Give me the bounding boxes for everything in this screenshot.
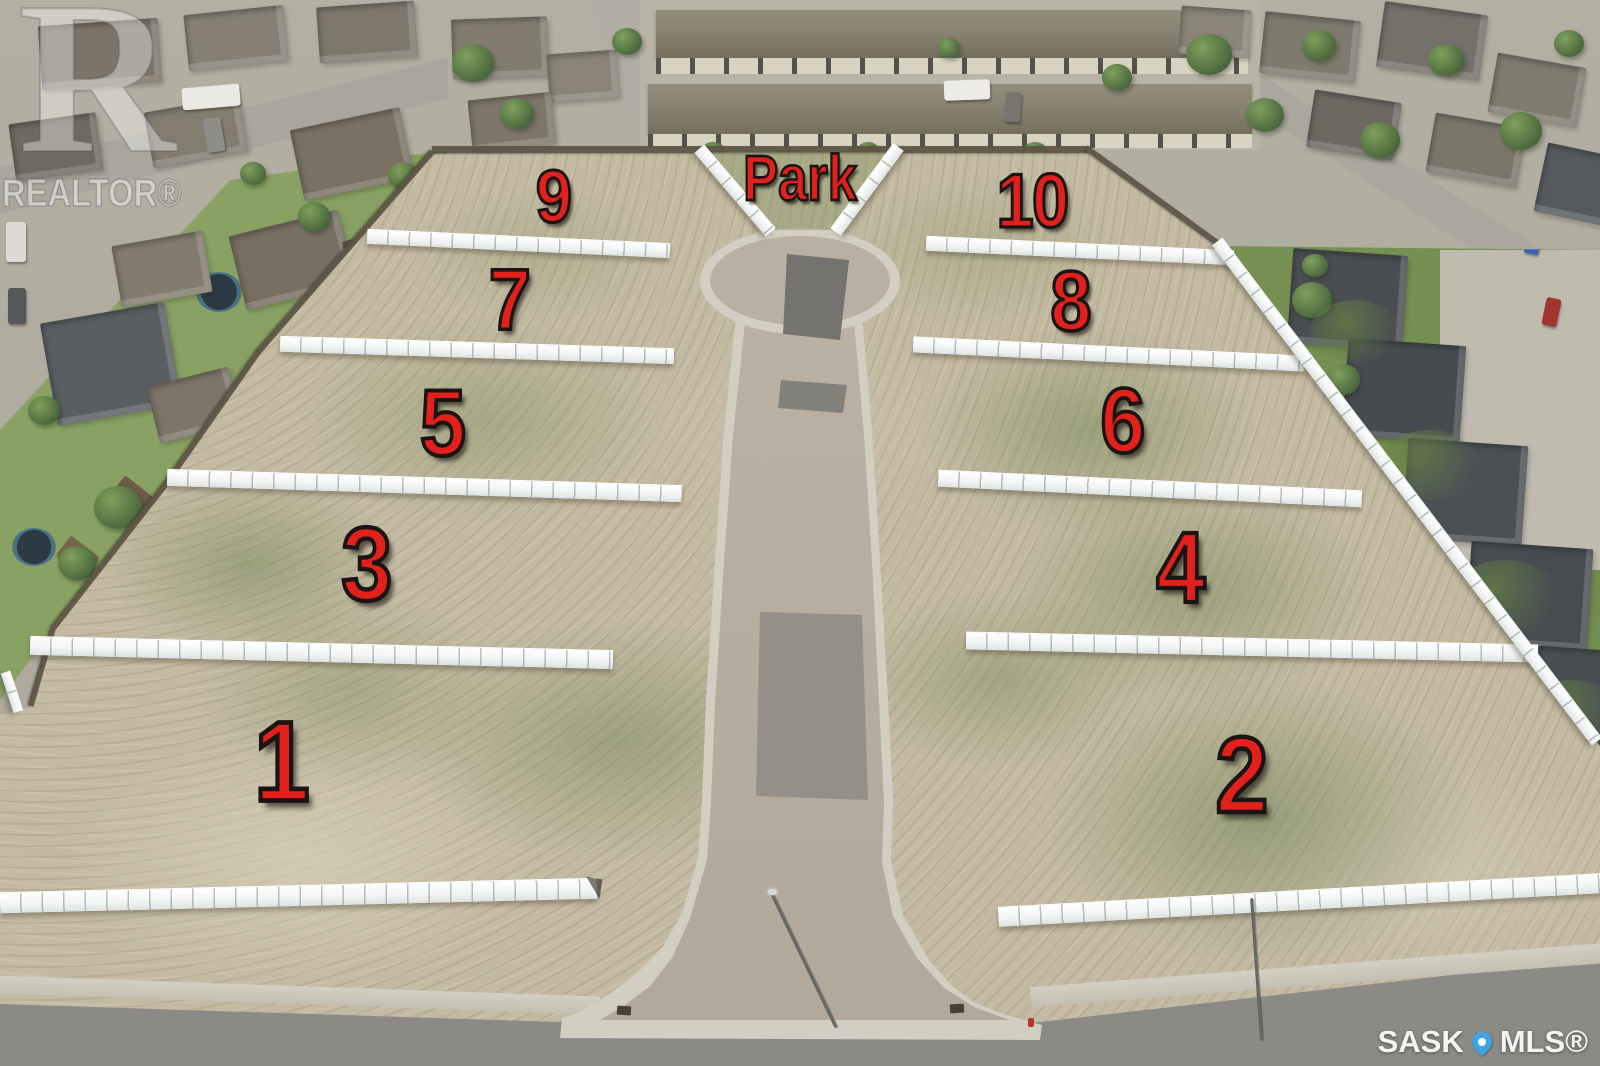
tree [500, 98, 534, 129]
lot-label-4: 4 [1156, 518, 1203, 618]
lot-label-1: 1 [254, 706, 308, 819]
lot-label-8: 8 [1050, 259, 1089, 343]
lot-label-7: 7 [489, 257, 529, 343]
vehicle [944, 79, 991, 101]
lot-label-2: 2 [1215, 721, 1266, 829]
tree [612, 28, 642, 55]
tree [938, 38, 960, 58]
lawn-patch [1310, 300, 1400, 363]
sask-text: SASK [1378, 1024, 1464, 1060]
lot-label-6: 6 [1100, 375, 1143, 467]
tree [1102, 64, 1132, 91]
realtor-r-logo: R [18, 0, 175, 188]
lot-label-10: 10 [997, 164, 1068, 240]
tree [1554, 30, 1584, 57]
trampoline [12, 528, 56, 566]
house-roof [1534, 142, 1600, 227]
house-roof [316, 1, 418, 64]
mls-text: MLS® [1500, 1024, 1588, 1060]
house-roof [1487, 53, 1586, 128]
fence-end-shadow [584, 877, 603, 899]
tree [28, 396, 60, 425]
tree [1302, 30, 1336, 61]
tree [1186, 34, 1232, 75]
house-roof [546, 50, 619, 103]
vehicle [6, 222, 26, 262]
fire-hydrant [1028, 1018, 1034, 1027]
vehicle [8, 288, 26, 324]
street-light-head [768, 889, 777, 895]
map-pin-icon [1468, 1028, 1496, 1056]
catch-basin [617, 1006, 632, 1016]
catch-basin [950, 1004, 965, 1014]
realtor-wordmark: REALTOR® [2, 172, 181, 216]
house-roof [183, 5, 288, 71]
vehicle [1004, 91, 1022, 122]
townhouse-row-wall [656, 58, 1248, 74]
tree [1500, 112, 1542, 150]
aerial-lot-photo: 1 2 3 4 5 6 7 8 9 10 Park R REALTOR® SAS… [0, 0, 1600, 1066]
tree [298, 202, 330, 231]
lot-label-3: 3 [341, 513, 390, 617]
realtor-watermark: R REALTOR® [2, 0, 192, 220]
tree [1246, 98, 1284, 132]
sask-mls-logo: SASK MLS® [1378, 1024, 1588, 1060]
park-label: Park [743, 146, 857, 210]
tree [1360, 122, 1400, 158]
lot-label-5: 5 [420, 376, 464, 470]
tree [452, 44, 494, 82]
lot-label-9: 9 [536, 160, 570, 234]
